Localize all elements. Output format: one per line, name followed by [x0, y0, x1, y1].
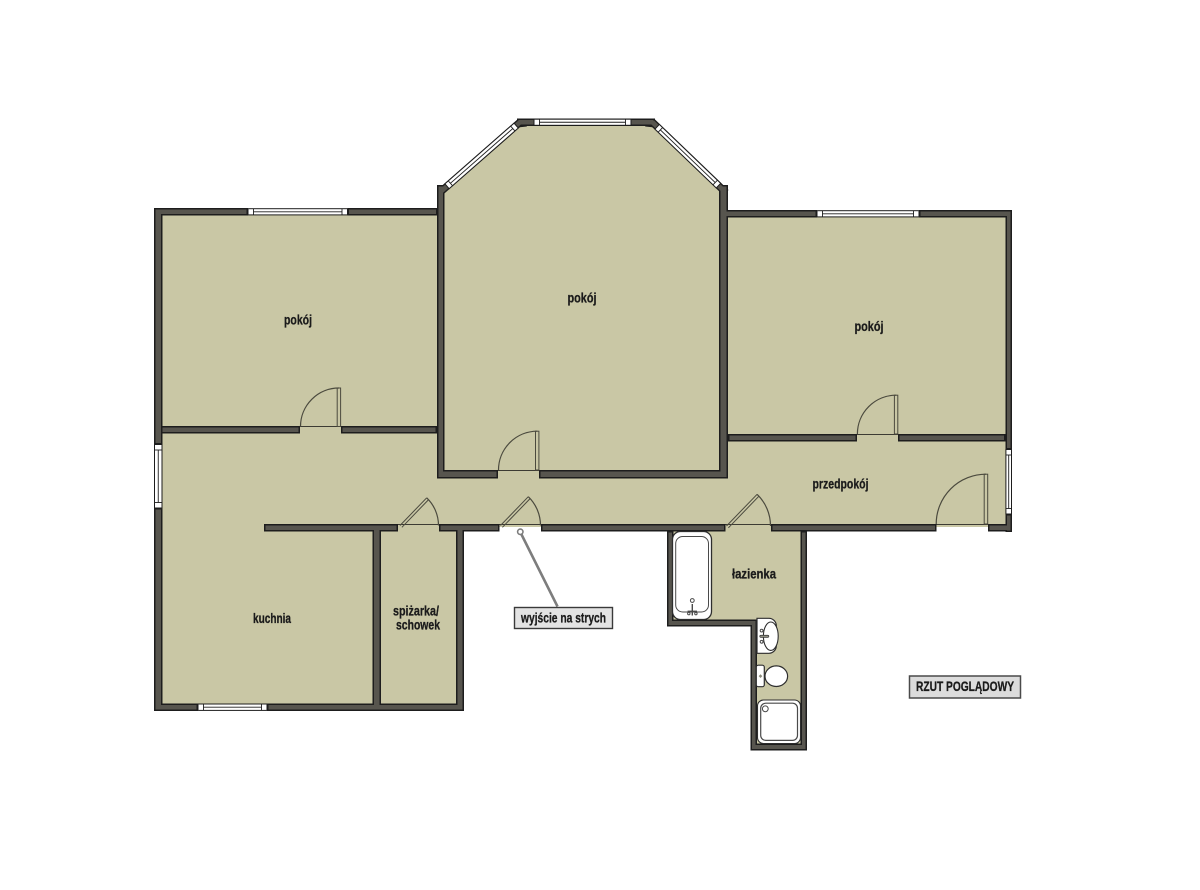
svg-text:pokój: pokój: [284, 312, 312, 328]
svg-text:łazienka: łazienka: [732, 566, 776, 582]
svg-text:kuchnia: kuchnia: [253, 610, 291, 626]
svg-text:schowek: schowek: [396, 617, 440, 633]
svg-text:RZUT POGLĄDOWY: RZUT POGLĄDOWY: [916, 678, 1014, 694]
svg-text:pokój: pokój: [568, 290, 597, 306]
svg-text:przedpokój: przedpokój: [813, 476, 869, 492]
svg-text:wyjście na strych: wyjście na strych: [520, 610, 606, 626]
svg-text:pokój: pokój: [855, 318, 884, 334]
